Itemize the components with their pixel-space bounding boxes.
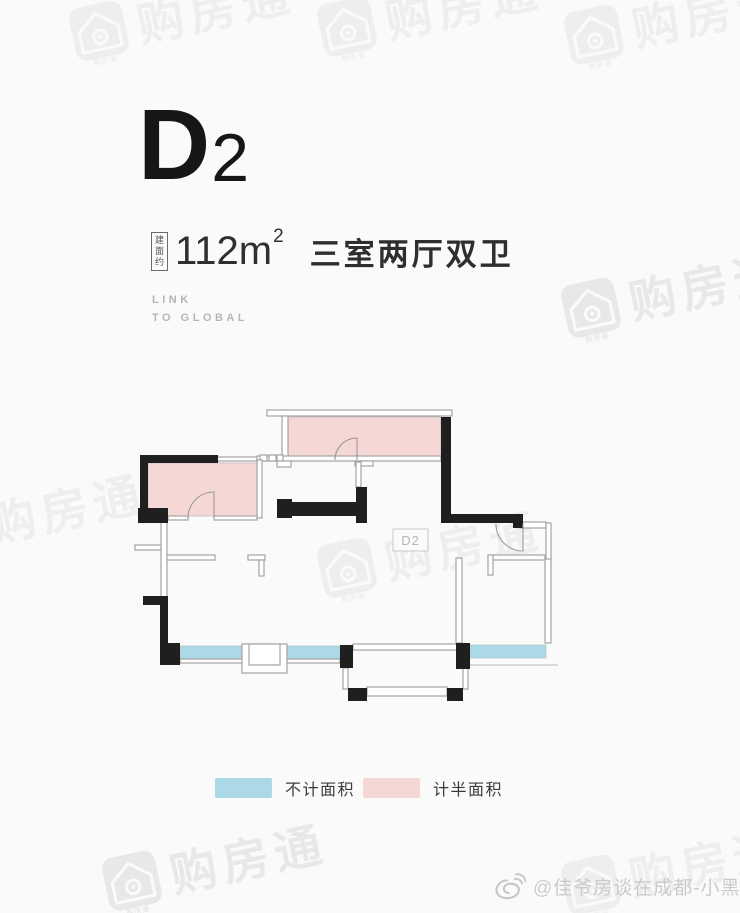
watermark-app-icon: 购房通 xyxy=(562,2,626,66)
no-count-strip-right xyxy=(470,645,546,658)
no-count-strip-left xyxy=(180,646,242,659)
watermark-caption: 购房通 xyxy=(326,46,381,67)
watermark: 购房通 购房通 xyxy=(557,232,740,346)
unit-spec-row: 建面约 112 m 2 三室两厅双卫 xyxy=(151,229,514,274)
floor-plan-drawing: D2 xyxy=(130,398,570,713)
watermark-app-icon: 购房通 xyxy=(67,0,131,62)
watermark-brand-text: 购房通 xyxy=(622,232,740,333)
door-arc-entry xyxy=(496,524,523,551)
tagline: LINK TO GLOBAL xyxy=(152,292,248,327)
watermark-caption: 购房通 xyxy=(570,904,625,913)
watermark-brand-text: 购房通 xyxy=(130,0,300,56)
watermark-brand-text: 购房通 xyxy=(0,455,152,556)
half-area-fills xyxy=(148,417,441,516)
no-count-strip-middle xyxy=(287,646,340,659)
half-area-top-balcony xyxy=(288,417,441,457)
unit-code-main: D xyxy=(138,98,208,193)
area-exponent: 2 xyxy=(273,226,284,248)
area-unit: m xyxy=(239,229,272,274)
area-prefix-box: 建面约 xyxy=(151,232,168,270)
legend-item-half-area: 计半面积 xyxy=(363,776,503,800)
tagline-line1: LINK xyxy=(152,292,248,310)
watermark-caption: 购房通 xyxy=(570,327,625,348)
area-value: 112 xyxy=(175,229,239,274)
floor-plan-card: 购房通 购房通 购房通 购房通 购房通 购房通 购房通 购房通 购房通 购房通 xyxy=(0,0,740,913)
attribution-text: @佳爷房谈在成都-小黑 xyxy=(533,873,740,900)
watermark-brand-text: 购房通 xyxy=(163,805,333,906)
unit-code-sub: 2 xyxy=(211,124,249,193)
watermark: 购房通 购房通 xyxy=(65,0,299,70)
watermark: 购房通 购房通 xyxy=(313,0,547,66)
plan-unit-label: D2 xyxy=(393,529,428,551)
legend-swatch-rect xyxy=(363,778,420,798)
watermark-app-icon: 购房通 xyxy=(100,848,164,912)
attribution: @佳爷房谈在成都-小黑 xyxy=(494,872,740,900)
watermark-caption: 购房通 xyxy=(78,50,133,71)
legend-swatch-rect xyxy=(215,778,272,798)
watermark-app-icon: 购房通 xyxy=(559,275,623,339)
legend-swatch-no-count xyxy=(215,778,272,798)
watermark-caption: 购房通 xyxy=(111,900,166,913)
watermark-caption: 购房通 xyxy=(573,54,628,75)
watermark-brand-text: 购房通 xyxy=(378,0,548,52)
legend-item-no-count: 不计面积 xyxy=(215,776,355,800)
watermark-brand-text: 购房通 xyxy=(625,0,740,60)
unit-code-title: D 2 xyxy=(138,98,249,193)
weibo-icon xyxy=(494,872,526,900)
layout-description: 三室两厅双卫 xyxy=(310,229,514,274)
watermark: 购房通 购房通 xyxy=(0,455,152,569)
legend-swatch-half-area xyxy=(363,778,420,798)
legend-label-no-count: 不计面积 xyxy=(285,776,355,800)
watermark: 购房通 购房通 xyxy=(98,805,332,913)
watermark-app-icon: 购房通 xyxy=(315,0,379,58)
plan-unit-label-text: D2 xyxy=(401,533,420,548)
legend-label-half-area: 计半面积 xyxy=(433,776,503,800)
watermark: 购房通 购房通 xyxy=(560,0,740,74)
tagline-line2: TO GLOBAL xyxy=(152,310,248,328)
